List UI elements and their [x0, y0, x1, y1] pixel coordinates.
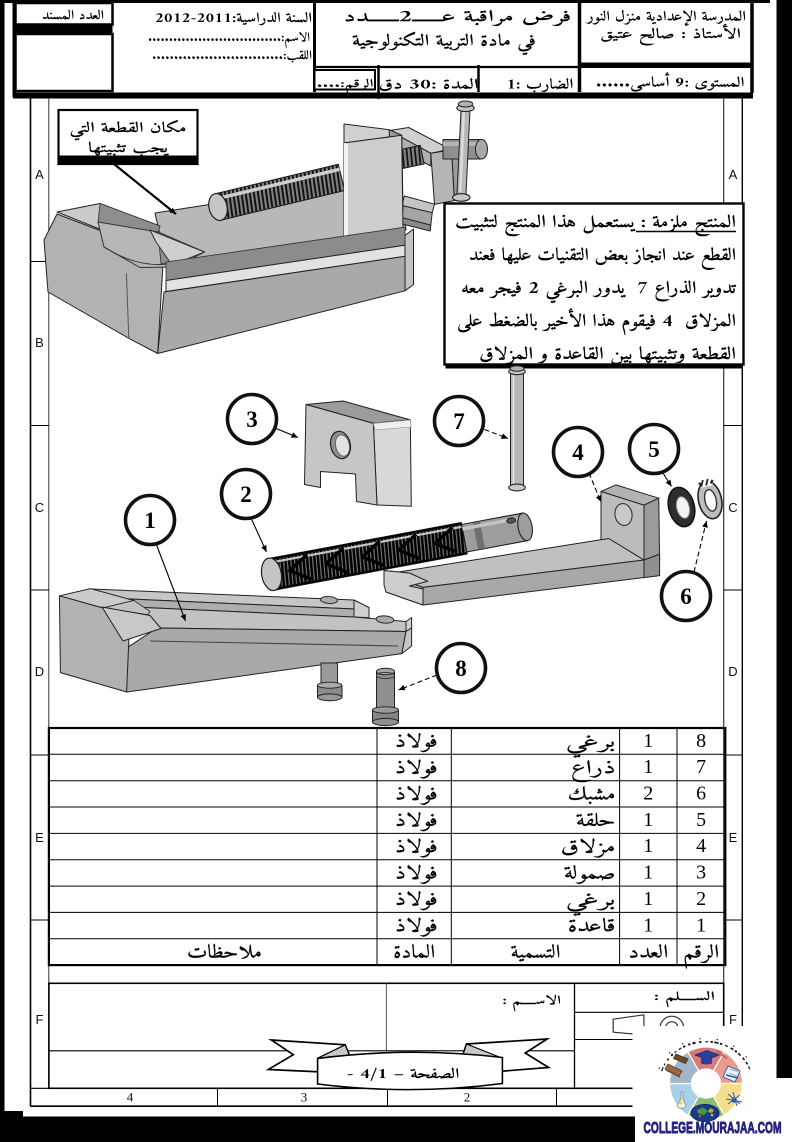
- svg-text:8: 8: [696, 730, 706, 752]
- svg-text:2: 2: [464, 1090, 471, 1105]
- svg-text:4: 4: [127, 1090, 134, 1105]
- svg-text:1: 1: [643, 835, 653, 857]
- svg-text:1: 1: [643, 862, 653, 884]
- svg-text:5: 5: [648, 437, 660, 462]
- svg-text:3: 3: [696, 862, 706, 884]
- svg-text:3: 3: [246, 407, 258, 432]
- svg-text:C: C: [728, 500, 737, 515]
- svg-text:5: 5: [696, 809, 706, 831]
- svg-text:3: 3: [301, 1090, 308, 1105]
- svg-text:6: 6: [680, 584, 692, 609]
- svg-text:7: 7: [696, 756, 706, 778]
- svg-text:1: 1: [643, 809, 653, 831]
- svg-text:1: 1: [144, 508, 156, 533]
- svg-text:1: 1: [643, 756, 653, 778]
- svg-text:1: 1: [696, 914, 706, 936]
- svg-text:F: F: [36, 1012, 44, 1027]
- svg-text:2: 2: [643, 783, 653, 805]
- svg-text:2: 2: [240, 482, 252, 507]
- svg-text:7: 7: [453, 409, 465, 434]
- svg-text:COLLEGE.MOURAJAA.COM: COLLEGE.MOURAJAA.COM: [644, 1120, 782, 1137]
- svg-text:6: 6: [696, 783, 706, 805]
- svg-text:2: 2: [696, 888, 706, 910]
- svg-text:1: 1: [643, 888, 653, 910]
- svg-text:4: 4: [696, 835, 706, 857]
- svg-text:C: C: [35, 500, 44, 515]
- svg-text:D: D: [35, 664, 44, 679]
- svg-text:1: 1: [643, 914, 653, 936]
- svg-text:E: E: [729, 830, 738, 845]
- svg-text:D: D: [728, 664, 737, 679]
- svg-text:F: F: [729, 1012, 737, 1027]
- svg-text:A: A: [729, 167, 738, 182]
- svg-text:4: 4: [572, 440, 584, 465]
- svg-text:1: 1: [643, 730, 653, 752]
- svg-text:E: E: [35, 830, 44, 845]
- svg-text:8: 8: [455, 656, 467, 681]
- svg-text:A: A: [35, 167, 44, 182]
- svg-text:B: B: [35, 335, 44, 350]
